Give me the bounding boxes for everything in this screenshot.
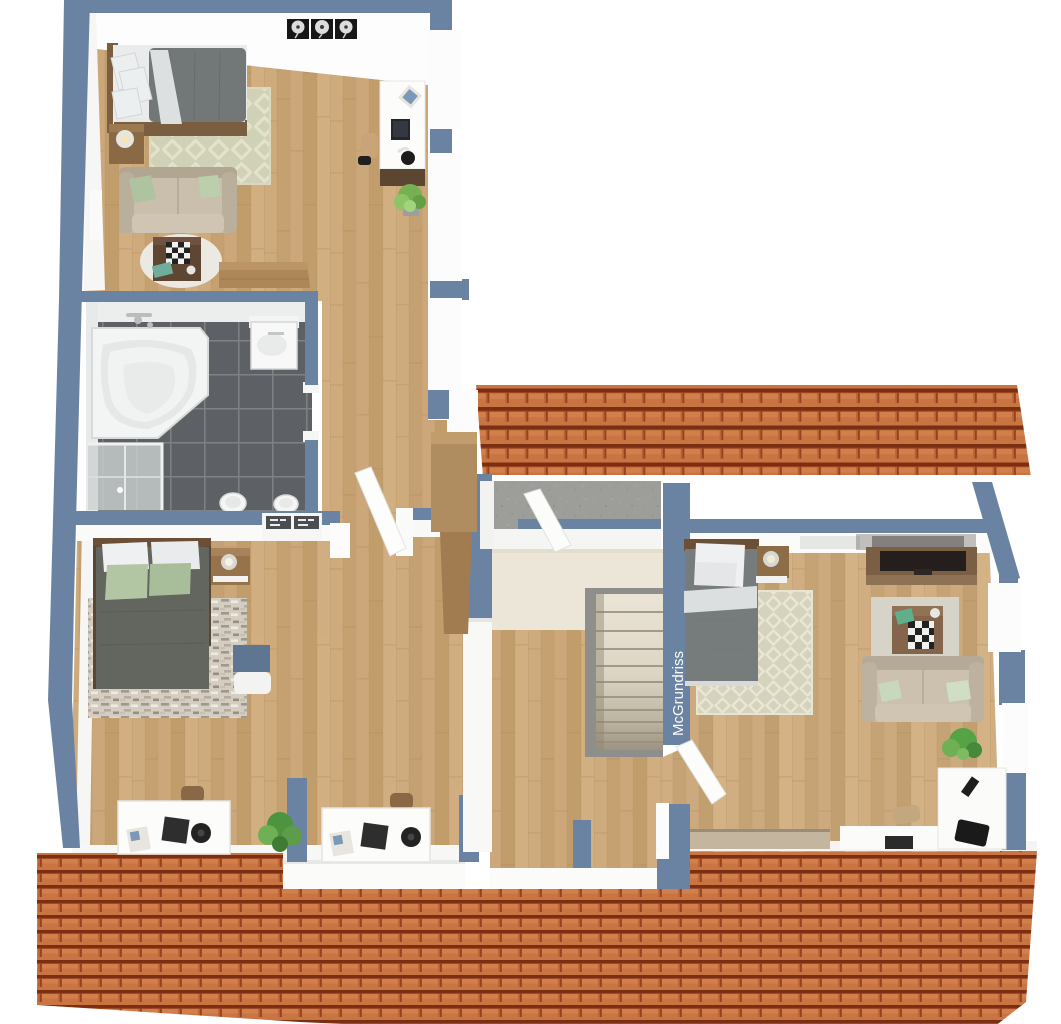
svg-text:McGrundriss: McGrundriss	[670, 651, 687, 736]
